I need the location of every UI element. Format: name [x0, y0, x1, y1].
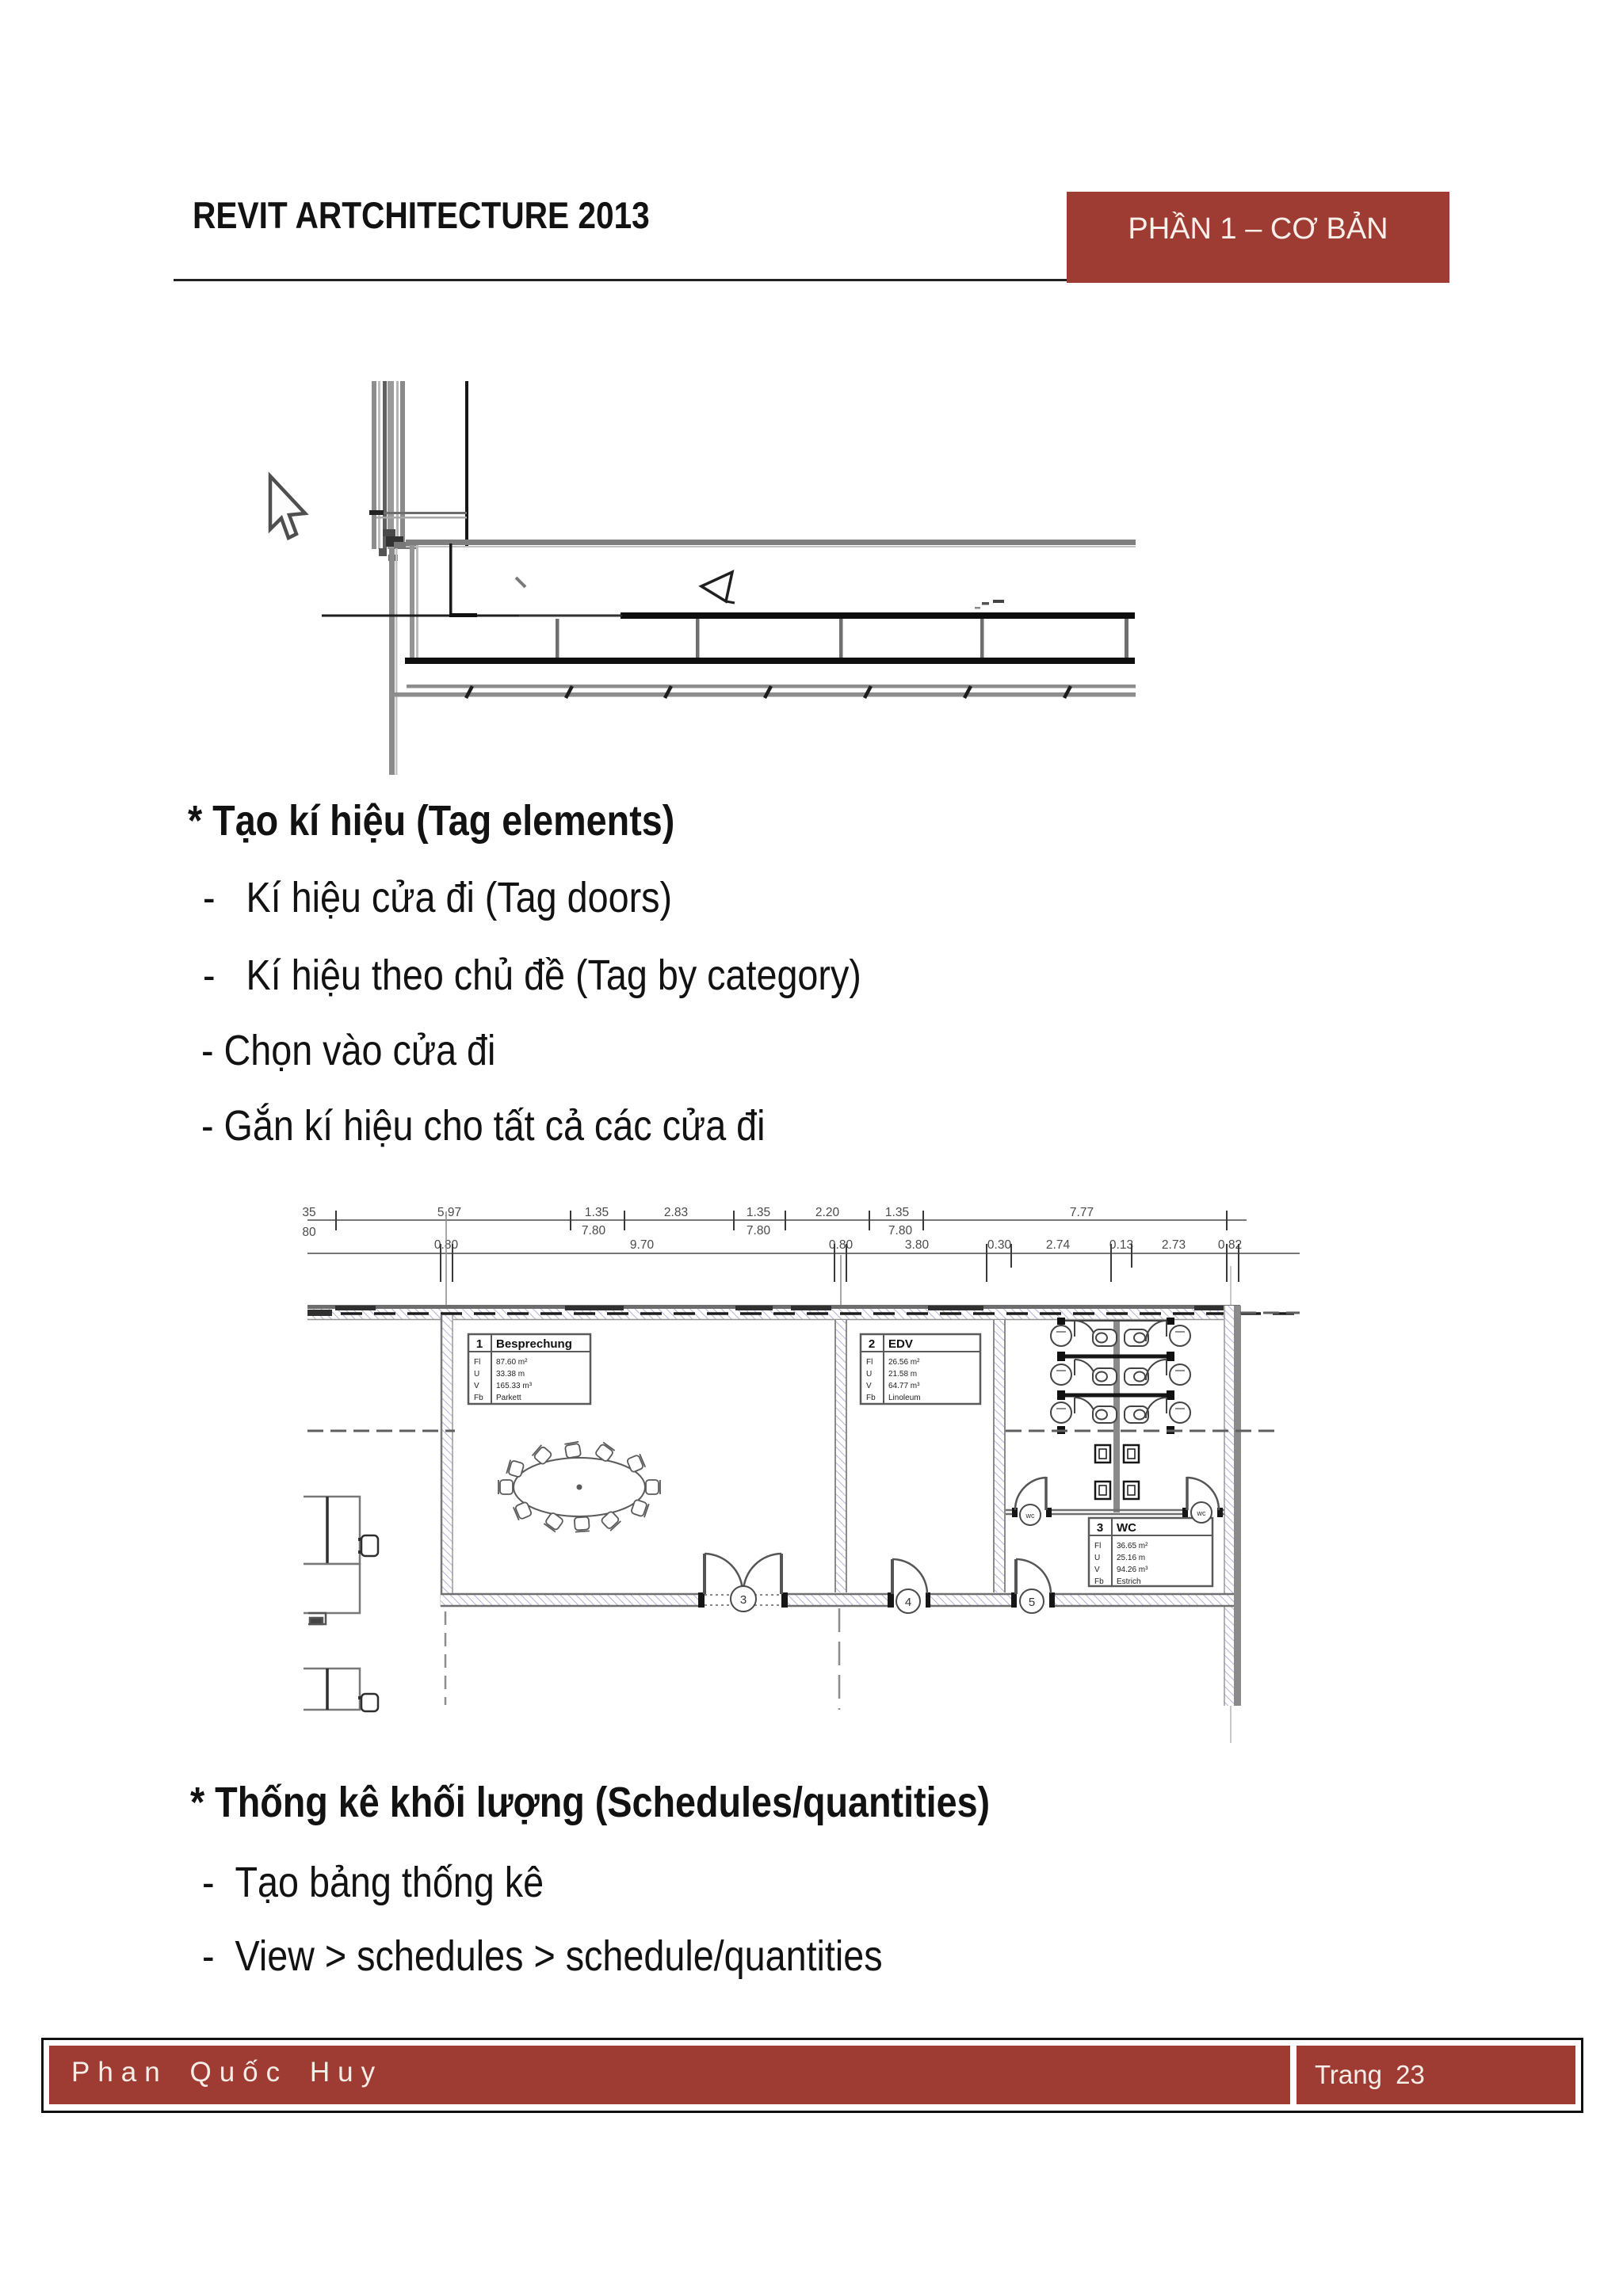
svg-text:9.70: 9.70: [630, 1238, 655, 1252]
svg-text:U: U: [474, 1370, 479, 1379]
svg-text:V: V: [1094, 1566, 1100, 1574]
svg-text:3.80: 3.80: [905, 1238, 930, 1252]
svg-text:36.65 m²: 36.65 m²: [1117, 1542, 1148, 1550]
svg-text:Parkett: Parkett: [496, 1394, 521, 1402]
svg-text:7.80: 7.80: [747, 1224, 771, 1238]
svg-text:Estrich: Estrich: [1117, 1577, 1141, 1586]
svg-text:1.35: 1.35: [747, 1206, 770, 1219]
svg-text:5.97: 5.97: [437, 1206, 461, 1219]
svg-text:Linoleum: Linoleum: [888, 1394, 921, 1402]
svg-text:7.80: 7.80: [888, 1224, 913, 1238]
svg-text:94.26 m³: 94.26 m³: [1117, 1566, 1148, 1574]
svg-text:0.30: 0.30: [987, 1238, 1012, 1252]
svg-text:1.35: 1.35: [885, 1206, 909, 1219]
svg-text:3: 3: [1097, 1521, 1103, 1535]
svg-text:7.77: 7.77: [1070, 1206, 1094, 1219]
svg-text:0.80: 0.80: [829, 1238, 854, 1252]
svg-text:wc: wc: [1025, 1512, 1035, 1520]
svg-text:33.38 m: 33.38 m: [496, 1370, 525, 1379]
svg-text:21.58 m: 21.58 m: [888, 1370, 917, 1379]
svg-text:Fl: Fl: [1094, 1542, 1101, 1550]
svg-text:5: 5: [1029, 1596, 1035, 1609]
svg-text:1.35: 1.35: [585, 1206, 609, 1219]
svg-text:25.16 m: 25.16 m: [1117, 1554, 1145, 1562]
svg-text:2: 2: [869, 1337, 875, 1351]
svg-text:U: U: [1094, 1554, 1100, 1562]
svg-text:Fb: Fb: [1094, 1577, 1104, 1586]
svg-text:2.83: 2.83: [664, 1206, 688, 1219]
svg-text:0.13: 0.13: [1109, 1238, 1133, 1252]
svg-text:Fb: Fb: [866, 1394, 876, 1402]
svg-text:1: 1: [476, 1337, 483, 1351]
svg-text:V: V: [474, 1382, 479, 1390]
svg-text:WC: WC: [1117, 1521, 1136, 1535]
svg-text:165.33 m³: 165.33 m³: [496, 1382, 533, 1390]
svg-text:2.20: 2.20: [815, 1206, 840, 1219]
svg-text:2.74: 2.74: [1046, 1238, 1071, 1252]
svg-text:Fl: Fl: [866, 1358, 873, 1367]
svg-text:3: 3: [740, 1593, 747, 1607]
svg-text:EDV: EDV: [888, 1337, 913, 1351]
svg-text:26.56 m²: 26.56 m²: [888, 1358, 920, 1367]
svg-text:V: V: [866, 1382, 872, 1390]
svg-text:Besprechung: Besprechung: [496, 1337, 572, 1351]
svg-text:64.77 m³: 64.77 m³: [888, 1382, 920, 1390]
svg-text:87.60 m²: 87.60 m²: [496, 1358, 528, 1367]
svg-text:U: U: [866, 1370, 872, 1379]
svg-text:4: 4: [905, 1596, 911, 1609]
svg-text:7.80: 7.80: [582, 1224, 606, 1238]
svg-text:Fb: Fb: [474, 1394, 483, 1402]
svg-text:wc: wc: [1197, 1509, 1206, 1517]
svg-text:Fl: Fl: [474, 1358, 480, 1367]
svg-text:2.73: 2.73: [1162, 1238, 1186, 1252]
svg-text:80: 80: [302, 1226, 316, 1239]
svg-text:35: 35: [302, 1206, 315, 1219]
